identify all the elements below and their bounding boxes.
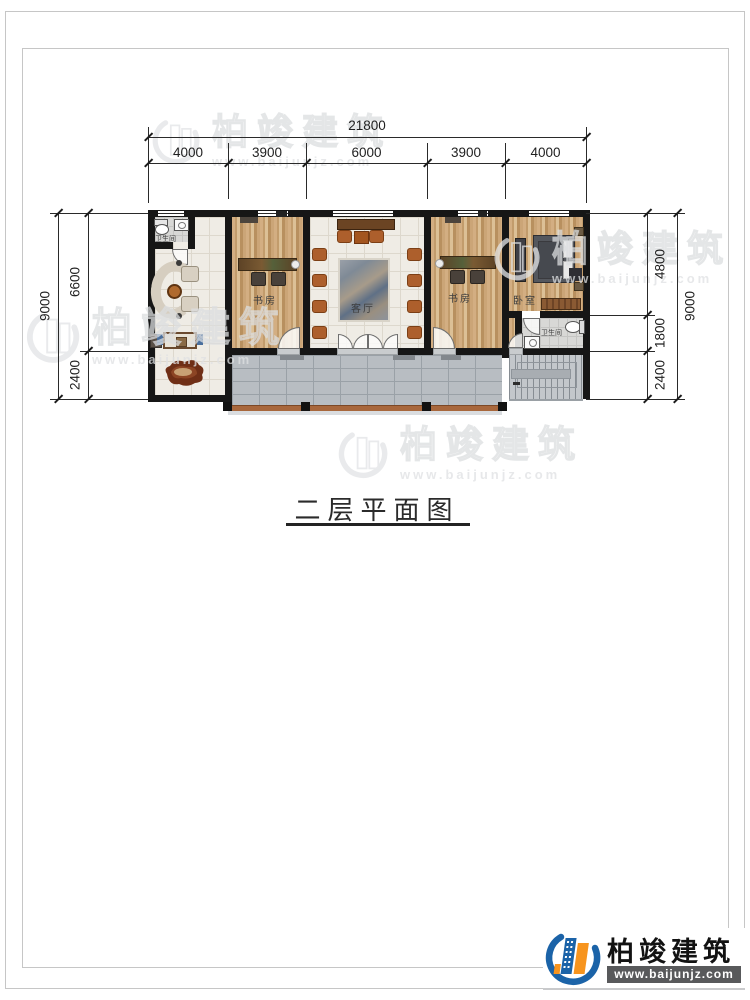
window-living xyxy=(333,210,393,217)
root-carving-table xyxy=(161,356,207,388)
wall-cabinet xyxy=(276,211,287,217)
armchair xyxy=(312,326,327,339)
desk-chair xyxy=(470,270,485,284)
center-table xyxy=(354,231,369,244)
wall-bottom-seg xyxy=(523,348,590,355)
balcony-floor xyxy=(232,355,502,405)
railing-post xyxy=(301,402,310,411)
railing-post xyxy=(223,402,232,411)
door-threshold xyxy=(433,348,456,355)
wall-bedroom-bath-seg xyxy=(540,311,590,318)
floor-plan: 书房 客厅 书房 卧室 卫生间 卫生间 xyxy=(145,208,592,420)
room-label-living: 客厅 xyxy=(351,300,375,315)
dim-top-seg: 3900 xyxy=(228,145,306,160)
dim-ext-line xyxy=(586,399,685,400)
dim-left-total: 9000 xyxy=(38,291,53,321)
dim-line xyxy=(88,213,89,399)
dim-line xyxy=(148,137,586,138)
tea-seat-blue xyxy=(197,334,203,345)
door-threshold xyxy=(277,348,300,355)
wall-study2-bedroom xyxy=(502,210,509,358)
title-underline xyxy=(286,523,470,526)
wall-right xyxy=(583,210,590,399)
dim-right-seg: 1800 xyxy=(653,318,668,348)
door-threshold xyxy=(337,348,398,355)
floor-lamp xyxy=(291,260,300,269)
balcony-threshold xyxy=(441,355,461,360)
door-threshold xyxy=(509,348,523,355)
nightstand xyxy=(574,282,584,291)
dim-line xyxy=(677,213,678,399)
wall-bedroom-bath-seg xyxy=(509,311,522,318)
dim-line xyxy=(647,213,648,399)
balcony-edge xyxy=(228,411,502,415)
room-label-bedroom: 卧室 xyxy=(513,292,537,307)
armchair xyxy=(407,248,422,261)
logo-divider-line xyxy=(543,988,745,990)
room-label-study1: 书房 xyxy=(253,292,277,307)
dim-ext-line xyxy=(50,213,148,214)
wall-bottom-seg xyxy=(300,348,337,355)
wall-bottom-seg xyxy=(398,348,433,355)
wall-bathroom1-right xyxy=(188,210,195,249)
armchair xyxy=(312,248,327,261)
pillow xyxy=(563,240,573,258)
wall-cabinet xyxy=(478,211,487,217)
tea-tray xyxy=(176,337,187,347)
company-logo: 柏竣建筑 www.baijunjz.com xyxy=(543,928,745,994)
console-table xyxy=(337,219,395,230)
desk-chair xyxy=(450,270,465,284)
window-bedroom xyxy=(529,210,569,217)
room-label-study2: 书房 xyxy=(448,290,472,305)
lounge-chair xyxy=(181,296,199,312)
wall-tearoom-right xyxy=(225,210,232,402)
tv-bench xyxy=(515,238,526,282)
dim-ext-line xyxy=(586,127,587,203)
floorplan-page: { "title": { "text": "二层平面图" }, "dimensi… xyxy=(0,0,750,1000)
desk-chair xyxy=(271,272,286,286)
balcony-threshold xyxy=(393,355,415,360)
wall-living-study2 xyxy=(424,210,431,351)
dim-ext-line xyxy=(80,351,148,352)
room-label-bathroom2: 卫生间 xyxy=(541,328,562,338)
toilet-tank xyxy=(579,320,585,334)
wall-tearoom-bottom xyxy=(148,395,232,402)
dim-right-seg: 2400 xyxy=(653,360,668,390)
wall-bottom-seg xyxy=(225,348,277,355)
dim-top-seg: 4000 xyxy=(148,145,228,160)
dresser xyxy=(541,298,581,310)
dim-top-seg: 6000 xyxy=(306,145,427,160)
round-table xyxy=(167,284,182,299)
washing-machine xyxy=(524,336,540,349)
armchair xyxy=(312,274,327,287)
staircase xyxy=(509,355,583,401)
railing-post xyxy=(422,402,431,411)
dim-left-seg: 2400 xyxy=(68,360,83,390)
wall-study1-living xyxy=(303,210,310,351)
dim-line xyxy=(58,213,59,399)
dim-top-seg: 4000 xyxy=(505,145,586,160)
dim-ext-line xyxy=(306,143,307,199)
armchair xyxy=(312,300,327,313)
dim-ext-line xyxy=(427,143,428,199)
company-logo-url: www.baijunjz.com xyxy=(607,966,741,983)
desk xyxy=(440,256,496,269)
dim-line xyxy=(148,163,586,164)
dim-right-total: 9000 xyxy=(683,291,698,321)
armchair xyxy=(369,230,384,243)
floor-lamp xyxy=(435,259,444,268)
ac-unit xyxy=(569,268,582,281)
dim-top-seg: 3900 xyxy=(427,145,505,160)
dim-ext-line xyxy=(148,127,149,203)
dim-ext-line xyxy=(505,143,506,199)
lounge-chair xyxy=(181,266,199,282)
railing-post xyxy=(498,402,507,411)
sink-bowl xyxy=(178,222,186,229)
balcony-threshold xyxy=(280,355,304,360)
dim-ext-line xyxy=(228,143,229,199)
stool xyxy=(176,260,182,266)
dim-right-seg: 4800 xyxy=(653,249,668,279)
company-logo-icon xyxy=(543,928,603,988)
window-bathroom1 xyxy=(158,210,184,217)
dim-ext-line xyxy=(586,213,685,214)
desk-chair xyxy=(251,272,266,286)
tea-seat-blue xyxy=(157,334,163,345)
dim-ext-line xyxy=(50,399,148,400)
company-logo-brand: 柏竣建筑 xyxy=(607,930,735,969)
shelf xyxy=(240,217,258,223)
dim-left-seg: 6600 xyxy=(68,267,83,297)
dim-top-total: 21800 xyxy=(148,118,586,133)
sink xyxy=(174,219,189,231)
armchair xyxy=(407,274,422,287)
washer-door xyxy=(529,339,537,347)
wall-bottom-seg xyxy=(456,348,509,355)
tea-table xyxy=(163,332,197,349)
stair-landing-rail xyxy=(511,369,571,379)
nightstand xyxy=(574,227,584,236)
drawing-title: 二层平面图 xyxy=(277,490,477,527)
stool xyxy=(176,313,182,319)
room-label-bathroom1: 卫生间 xyxy=(155,234,176,244)
armchair xyxy=(337,230,352,243)
bed-blanket xyxy=(538,241,564,279)
stair-direction-mark xyxy=(513,382,520,385)
shelf xyxy=(445,217,461,223)
desk xyxy=(238,258,297,271)
armchair xyxy=(407,326,422,339)
armchair xyxy=(407,300,422,313)
